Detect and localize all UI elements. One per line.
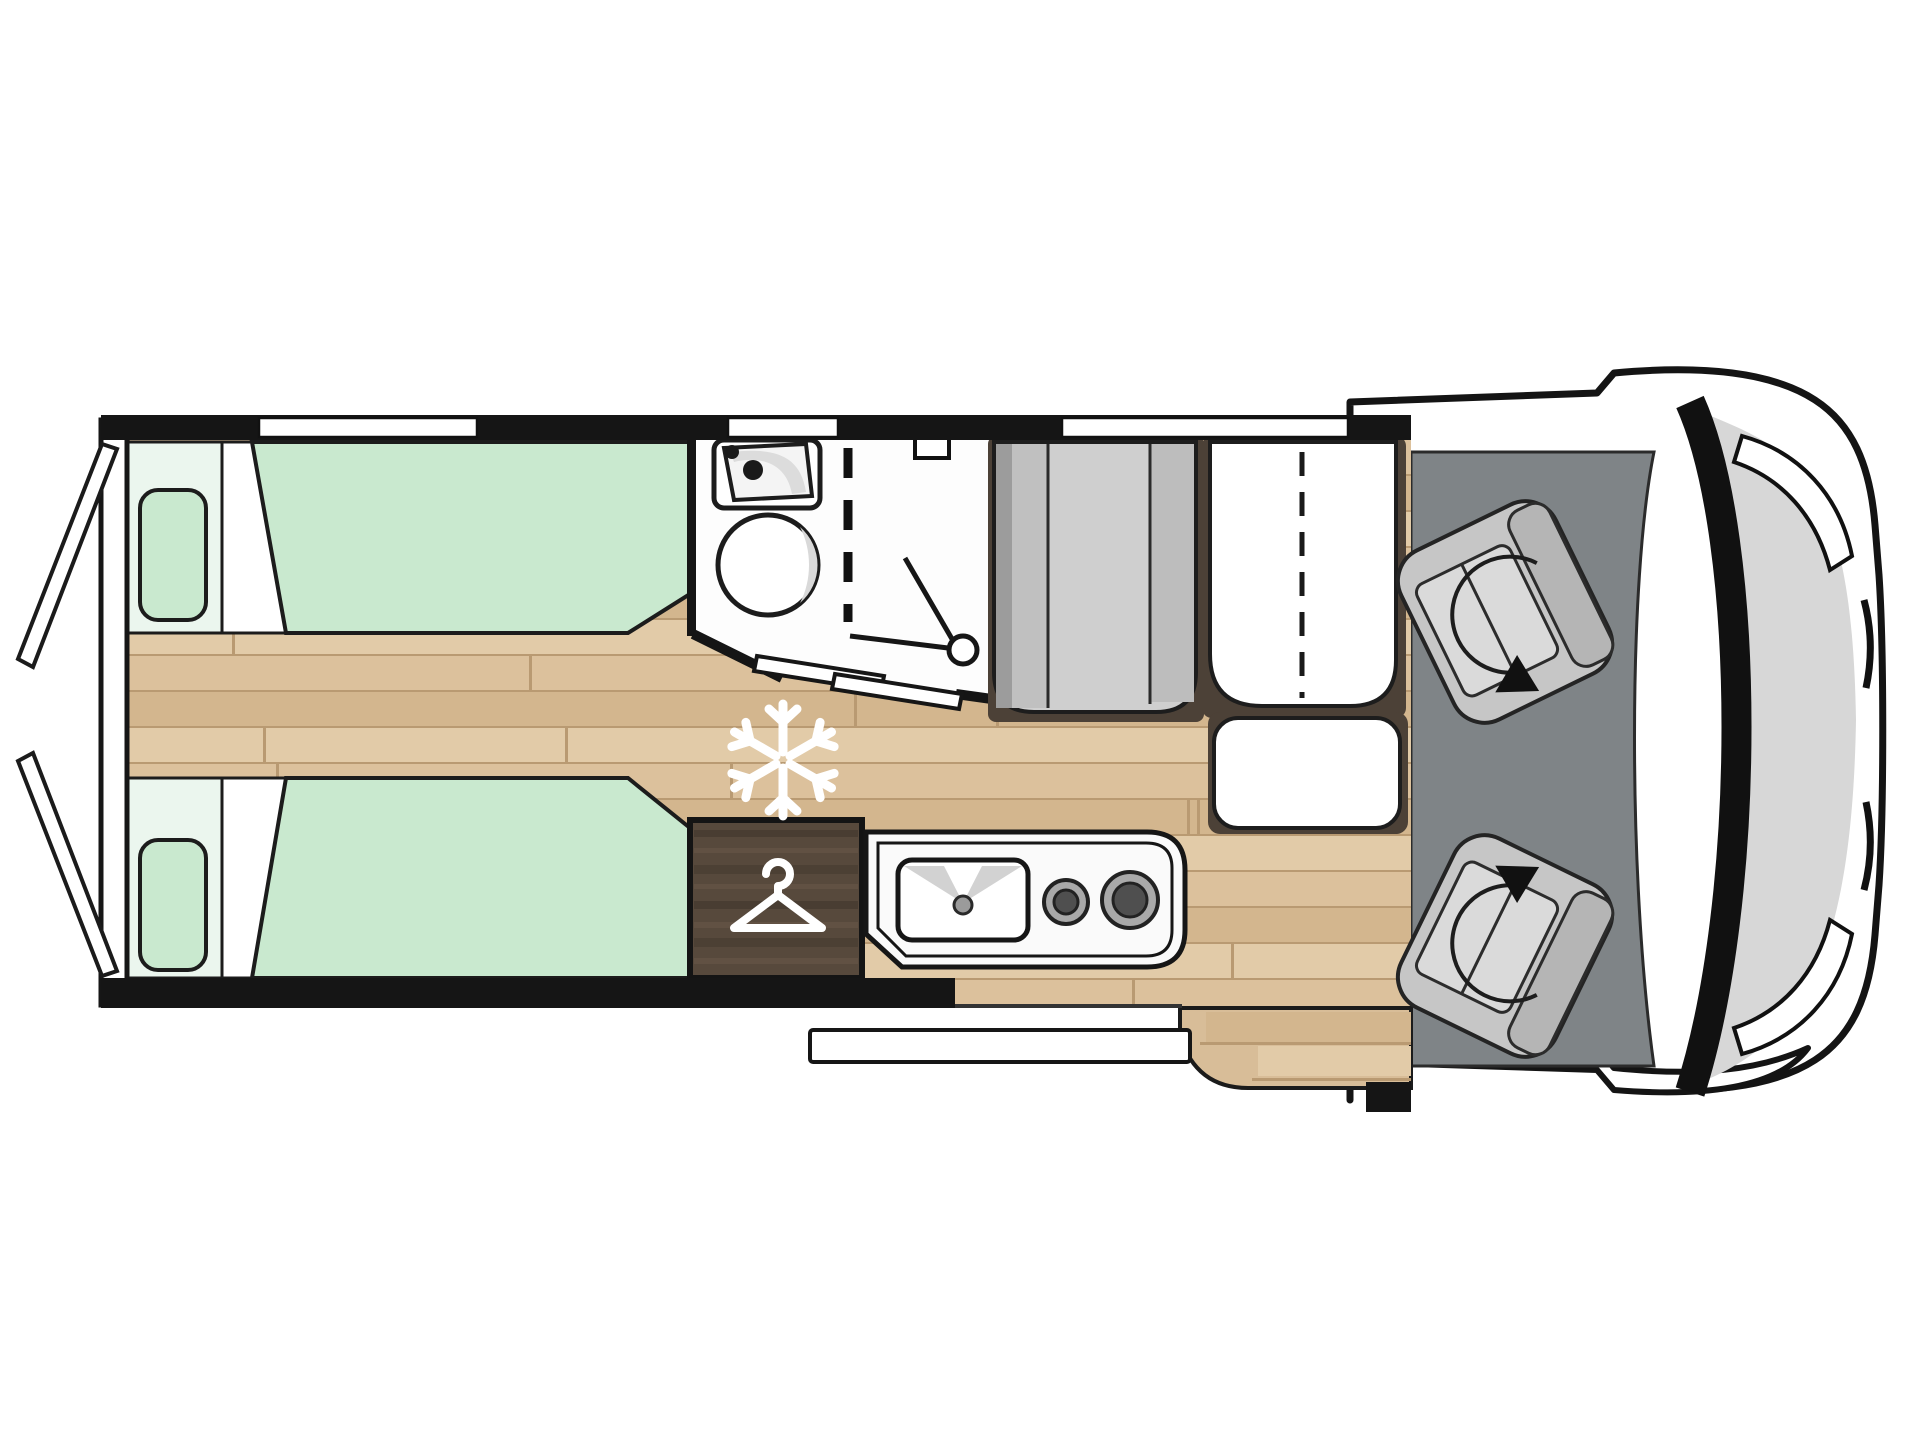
pillow <box>140 490 206 620</box>
pillow <box>140 840 206 970</box>
faucet-dot-large <box>743 460 763 480</box>
bottom-corner-wall <box>1366 1082 1411 1112</box>
bench-front-band <box>1150 444 1194 702</box>
wall-window-1 <box>259 418 477 437</box>
bed-mattress <box>252 778 690 978</box>
dinette-bench-rear <box>1214 718 1400 828</box>
entry-threshold <box>955 1004 1182 1008</box>
rear-single-bed-top <box>127 442 690 633</box>
bottom-wall <box>101 978 955 1008</box>
bed-mattress <box>252 442 690 633</box>
kitchen-unit <box>866 832 1185 967</box>
floorplan-canvas <box>0 0 1920 1440</box>
bench-mid-band <box>1012 444 1048 708</box>
motorhome-floorplan <box>0 0 1920 1440</box>
wall-window-2 <box>728 418 838 437</box>
rear-single-bed-bottom <box>127 778 690 978</box>
bench-back-band <box>996 444 1012 708</box>
hob-burner-small-center <box>1054 890 1078 914</box>
wall-window-3 <box>1062 418 1348 437</box>
faucet-dot-small <box>725 445 739 459</box>
wardrobe <box>690 820 862 978</box>
entry-step <box>810 1030 1190 1062</box>
bathroom-wall-left <box>687 440 696 636</box>
rear-wall <box>101 420 127 1005</box>
hob-burner-large-center <box>1113 883 1147 917</box>
kitchen-faucet <box>954 896 972 914</box>
